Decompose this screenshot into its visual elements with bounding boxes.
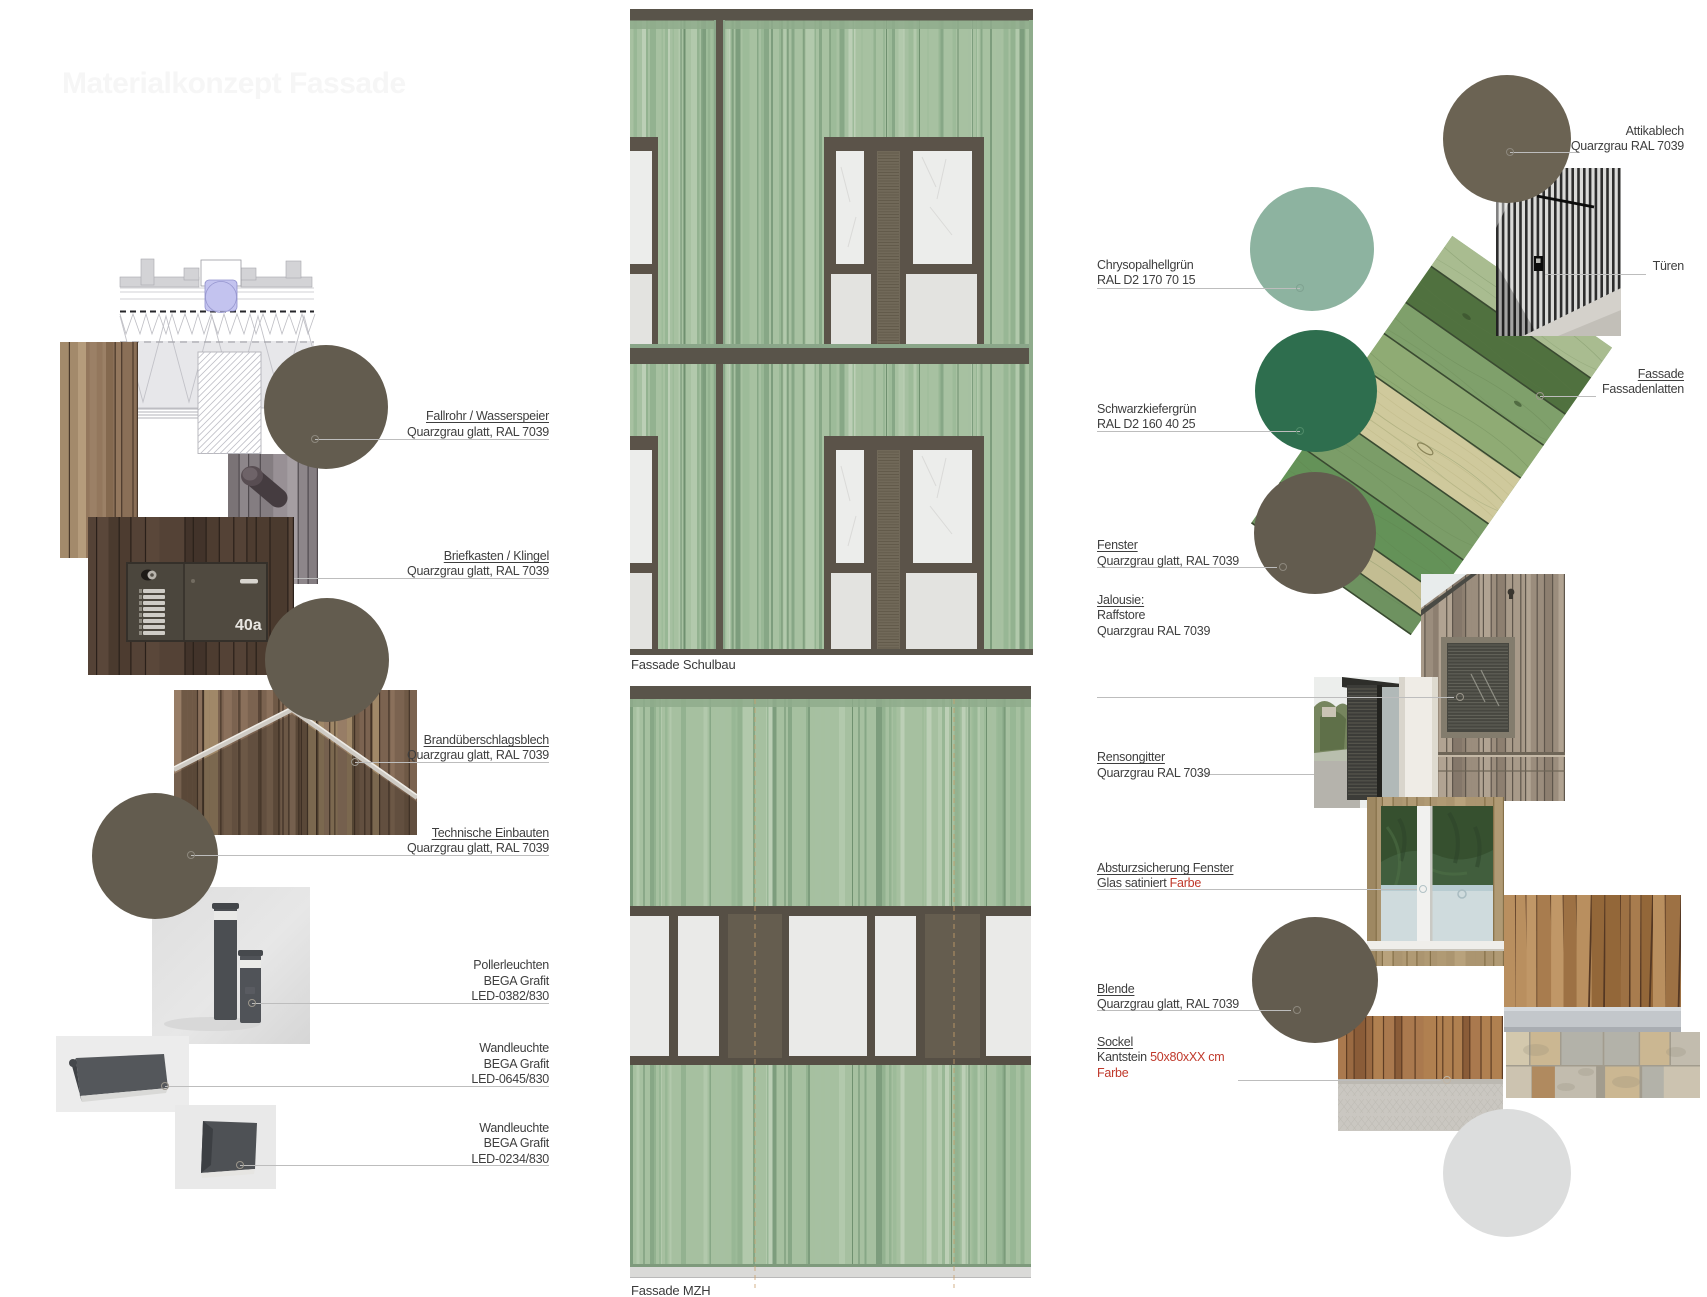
svg-text:40a: 40a <box>235 617 262 634</box>
